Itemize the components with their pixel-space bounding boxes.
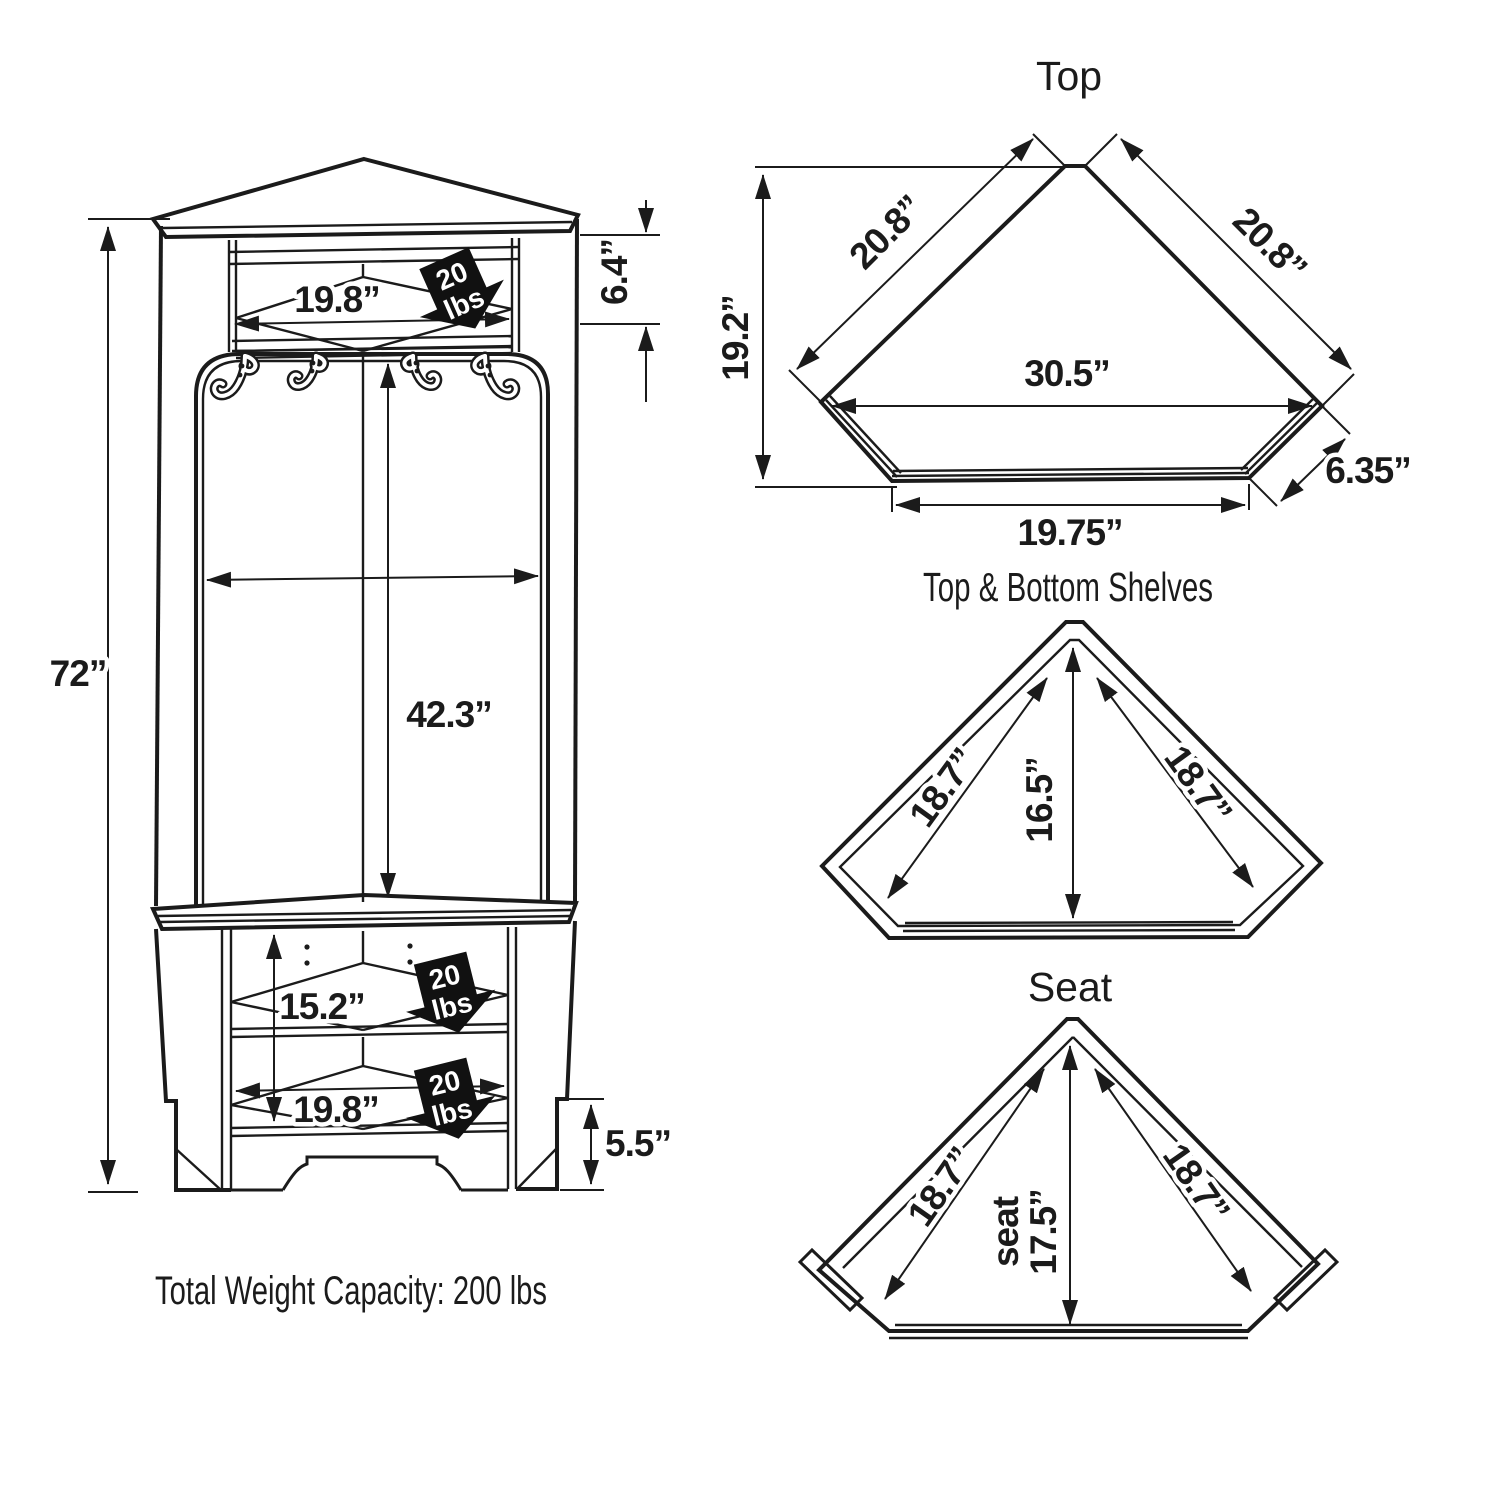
top-plan-view: Top 19.2” 20.8” 20.8”: [715, 53, 1411, 553]
dim-seat-left-edge-label: 18.7”: [899, 1140, 982, 1234]
dim-top-width-label: 30.5”: [1024, 353, 1110, 394]
dim-middle-opening-height-label: 15.2”: [279, 986, 365, 1027]
load-badge: 20 lbs: [402, 239, 517, 347]
seat-right-trim: [1275, 1250, 1337, 1310]
seat-outline: [800, 1019, 1337, 1338]
load-badge: 20 lbs: [395, 1053, 503, 1150]
dim-shelf-right-edge-label: 18.7”: [1156, 738, 1239, 831]
dimension-diagram-sheet: 72” 19: [0, 0, 1500, 1500]
dim-shelf-depth: 16.5”: [1019, 648, 1073, 918]
dim-top-front-width-label: 19.75”: [1017, 512, 1122, 553]
dim-seat-right-edge-label: 18.7”: [1155, 1136, 1238, 1230]
dim-seat-word-label: seat: [985, 1196, 1026, 1267]
dim-panel-height-label: 42.3”: [406, 694, 492, 735]
dim-top-depth-label: 19.2”: [715, 295, 756, 381]
seat-plan-view: Seat seat 17.5” 18.7” 18.7”: [800, 964, 1337, 1338]
top-view-title: Top: [1036, 53, 1102, 99]
dim-top-right-edge-label: 20.8”: [1225, 199, 1314, 288]
shelf-outline: [822, 622, 1321, 938]
base-arch-cutout: [283, 1157, 461, 1190]
lower-cabinet: [156, 921, 575, 1190]
shelves-view-title: Top & Bottom Shelves: [923, 564, 1213, 610]
dim-shelf-right-edge: 18.7”: [1097, 678, 1253, 887]
dim-top-corner-edge-label: 6.35”: [1325, 450, 1411, 491]
diagram-canvas: 72” 19: [0, 0, 1500, 1500]
hall-tree-top-board: [153, 159, 578, 237]
dim-top-opening-width-label: 19.8”: [294, 279, 380, 320]
dim-panel-height: 42.3”: [388, 364, 492, 897]
dim-shelf-depth-label: 16.5”: [1019, 757, 1060, 843]
dim-top-opening-height-label: 6.4”: [594, 239, 635, 305]
seat-board: [153, 895, 576, 929]
dim-base-height: 5.5”: [560, 1099, 671, 1190]
dim-top-right-edge: 20.8”: [1085, 134, 1354, 406]
dim-overall-height: 72”: [50, 219, 170, 1192]
interior-width-arrow: [207, 576, 538, 580]
dim-overall-height-label: 72”: [50, 653, 107, 694]
dim-top-opening-height: 6.4”: [580, 200, 660, 402]
back-panel: [196, 354, 548, 906]
dim-seat-right-edge: 18.7”: [1095, 1069, 1251, 1291]
total-weight-capacity-note: Total Weight Capacity: 200 lbs: [155, 1269, 547, 1313]
dim-top-left-edge-label: 20.8”: [841, 187, 930, 276]
dim-base-height-label: 5.5”: [605, 1123, 671, 1164]
dim-top-width: 30.5”: [832, 353, 1312, 406]
dim-shelf-left-edge-label: 18.7”: [901, 741, 984, 834]
dim-top-front-width: 19.75”: [892, 484, 1249, 553]
shelves-plan-view: Top & Bottom Shelves 16.5” 18.7” 18.7”: [822, 564, 1321, 938]
dim-seat-depth-label: 17.5”: [1023, 1189, 1064, 1275]
seat-view-title: Seat: [1028, 964, 1113, 1010]
dim-bottom-opening-width-label: 19.8”: [293, 1089, 379, 1130]
front-elevation-view: 72” 19: [50, 159, 671, 1313]
